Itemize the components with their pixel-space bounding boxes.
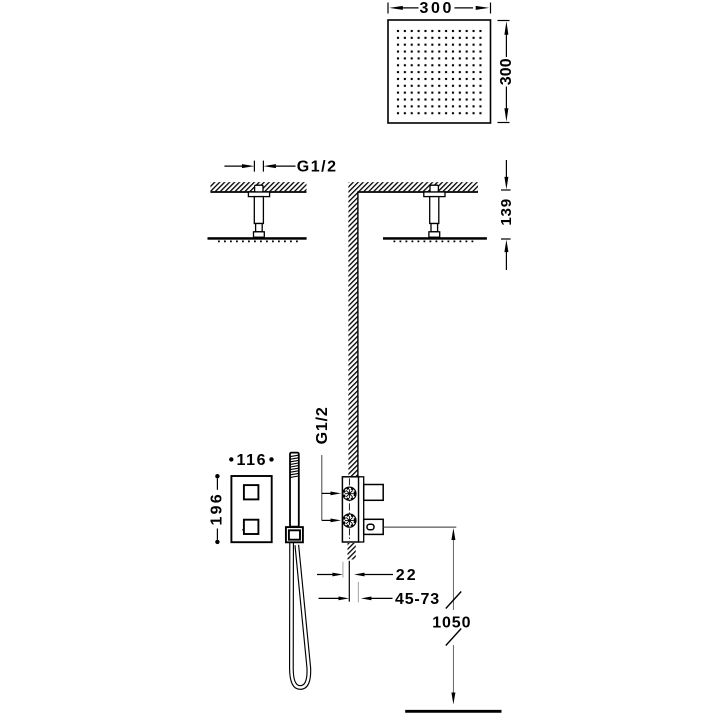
svg-text:22: 22 — [396, 567, 418, 584]
svg-text:45-73: 45-73 — [395, 591, 440, 608]
svg-text:300: 300 — [498, 58, 515, 85]
svg-text:1050: 1050 — [432, 615, 471, 632]
svg-text:116: 116 — [236, 452, 267, 469]
svg-text:G1/2: G1/2 — [314, 406, 331, 444]
svg-text:G1/2: G1/2 — [297, 159, 338, 176]
svg-text:300: 300 — [420, 0, 455, 17]
svg-text:196: 196 — [209, 492, 226, 525]
svg-text:139: 139 — [498, 198, 515, 226]
